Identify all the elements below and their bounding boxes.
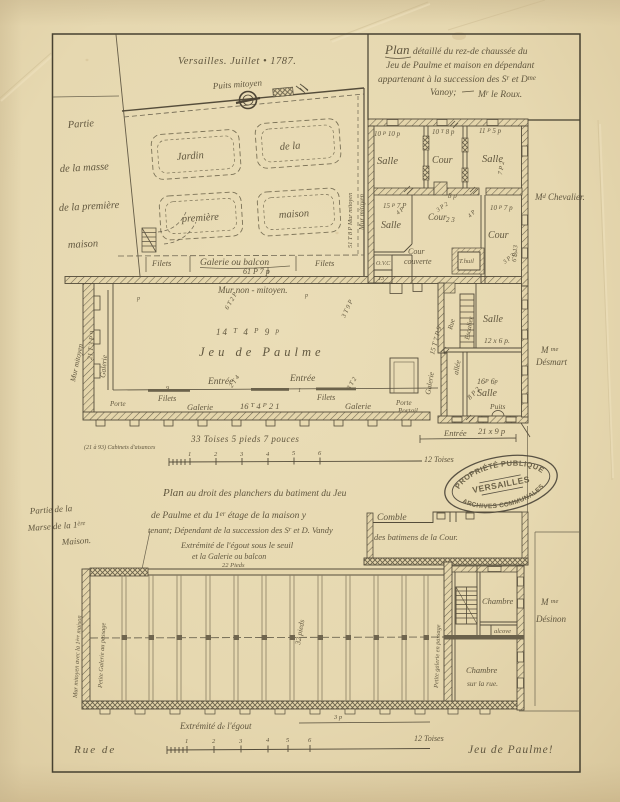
- svg-text:13: 13: [378, 276, 384, 282]
- svg-text:Mur non - mitoyen.: Mur non - mitoyen.: [217, 285, 288, 295]
- svg-text:Md Chevalier.: Md Chevalier.: [534, 192, 585, 202]
- svg-text:Salle: Salle: [381, 220, 402, 231]
- svg-text:Cour: Cour: [488, 230, 509, 241]
- svg-text:Filets: Filets: [151, 258, 172, 268]
- svg-text:Puits: Puits: [489, 402, 505, 411]
- svg-text:Cour: Cour: [432, 155, 453, 166]
- svg-text:couverte: couverte: [404, 257, 432, 266]
- svg-text:p: p: [136, 296, 140, 302]
- svg-text:Filets: Filets: [314, 258, 335, 268]
- svg-text:Vanoy;: Vanoy;: [430, 88, 456, 98]
- svg-text:Jeu de Paulme: Jeu de Paulme: [199, 345, 325, 359]
- svg-text:T.huil: T.huil: [459, 258, 474, 265]
- svg-text:maison: maison: [279, 208, 310, 221]
- svg-text:Extrémité de l'égout: Extrémité de l'égout: [179, 721, 252, 731]
- svg-text:15 P 7 P: 15 P 7 P: [383, 202, 407, 210]
- svg-text:Partie: Partie: [66, 118, 94, 131]
- svg-text:Chambre: Chambre: [482, 596, 514, 606]
- svg-text:12 x 6 p.: 12 x 6 p.: [484, 336, 510, 345]
- svg-text:Rue de: Rue de: [73, 744, 116, 756]
- svg-text:Entrée: Entrée: [207, 377, 233, 387]
- svg-text:Porte: Porte: [395, 399, 412, 407]
- svg-text:(21 à 93) Cabinets d'aisances: (21 à 93) Cabinets d'aisances: [84, 444, 156, 451]
- svg-text:2 3: 2 3: [446, 216, 455, 224]
- svg-text:1: 1: [188, 451, 191, 458]
- svg-text:alcove: alcove: [494, 628, 511, 635]
- svg-text:maison: maison: [68, 238, 99, 251]
- svg-text:des batimens de la Cour.: des batimens de la Cour.: [374, 532, 458, 542]
- svg-text:22 Pieds: 22 Pieds: [222, 562, 245, 569]
- svg-text:première: première: [181, 212, 220, 225]
- svg-text:Filets: Filets: [157, 394, 176, 403]
- svg-text:appartenant à la succession: appartenant à la succession des Sr et Dm…: [378, 74, 536, 85]
- svg-text:Entrée: Entrée: [289, 374, 315, 384]
- svg-text:16 T 4 P 2 1: 16 T 4 P 2 1: [240, 401, 279, 411]
- svg-text:21 x 9 p: 21 x 9 p: [478, 426, 505, 436]
- svg-text:Désmart: Désmart: [535, 357, 567, 367]
- svg-text:12 Toises: 12 Toises: [424, 455, 454, 464]
- svg-text:Filets: Filets: [316, 393, 335, 402]
- svg-text:Cour: Cour: [428, 212, 447, 222]
- svg-text:33 Toises 5 pieds 7 pou: 33 Toises 5 pieds 7 pouces: [190, 434, 299, 444]
- svg-text:et la Galerie ou balcon: et la Galerie ou balcon: [192, 552, 266, 561]
- svg-text:Porte: Porte: [109, 400, 126, 408]
- svg-text:Jeu de Paulme!: Jeu de Paulme!: [468, 744, 554, 756]
- svg-text:Salle: Salle: [483, 314, 504, 325]
- svg-text:Extrémité de l'égout sous: Extrémité de l'égout sous le seuil: [180, 540, 294, 550]
- svg-text:51 T 8 P Mur mitoyen: 51 T 8 P Mur mitoyen: [347, 193, 354, 248]
- svg-text:11 P 5 p: 11 P 5 p: [479, 127, 502, 135]
- svg-text:sur la rue.: sur la rue.: [467, 679, 498, 688]
- svg-text:12 Toises: 12 Toises: [414, 734, 444, 743]
- svg-text:Jeu de Paulme et maison en: Jeu de Paulme et maison en dépendant: [386, 61, 535, 71]
- svg-text:p: p: [304, 293, 308, 299]
- svg-text:de Paulme et du 1er étage: de Paulme et du 1er étage de la maison y: [151, 510, 307, 521]
- svg-text:Salle: Salle: [477, 388, 498, 399]
- svg-text:10 P 10 p: 10 P 10 p: [374, 130, 401, 138]
- svg-text:Chambre: Chambre: [466, 665, 498, 675]
- svg-text:Entrée: Entrée: [443, 428, 467, 438]
- svg-text:3 p: 3 p: [333, 714, 343, 721]
- svg-text:O.V.C: O.V.C: [376, 261, 391, 267]
- svg-text:tenant; Dépendant de la suc: tenant; Dépendant de la succession des S…: [148, 525, 333, 535]
- svg-text:1: 1: [185, 738, 188, 745]
- svg-text:Comble: Comble: [377, 513, 407, 523]
- svg-text:10 T 8 p: 10 T 8 p: [432, 128, 455, 136]
- svg-text:Plan au droit des plancher: Plan au droit des planchers du batiment …: [162, 487, 347, 499]
- svg-text:Versailles. Juillet • 1787.: Versailles. Juillet • 1787.: [178, 56, 296, 67]
- svg-text:de la: de la: [279, 141, 300, 153]
- svg-text:10 P 7 p: 10 P 7 p: [490, 204, 513, 212]
- svg-text:Galerie: Galerie: [187, 402, 213, 412]
- svg-text:Jardin: Jardin: [176, 150, 204, 163]
- svg-text:Maison.: Maison.: [60, 535, 91, 547]
- svg-text:Désinon: Désinon: [535, 614, 566, 624]
- svg-text:Mr le Roux.: Mr le Roux.: [477, 89, 522, 100]
- svg-text:8 p: 8 p: [448, 192, 457, 200]
- svg-text:Salle: Salle: [377, 156, 398, 167]
- svg-text:Mur mitoyen: Mur mitoyen: [358, 194, 366, 231]
- svg-text:Galerie: Galerie: [345, 401, 371, 411]
- svg-text:14 T 4 P 9 p: 14 T 4 P 9 p: [216, 327, 281, 337]
